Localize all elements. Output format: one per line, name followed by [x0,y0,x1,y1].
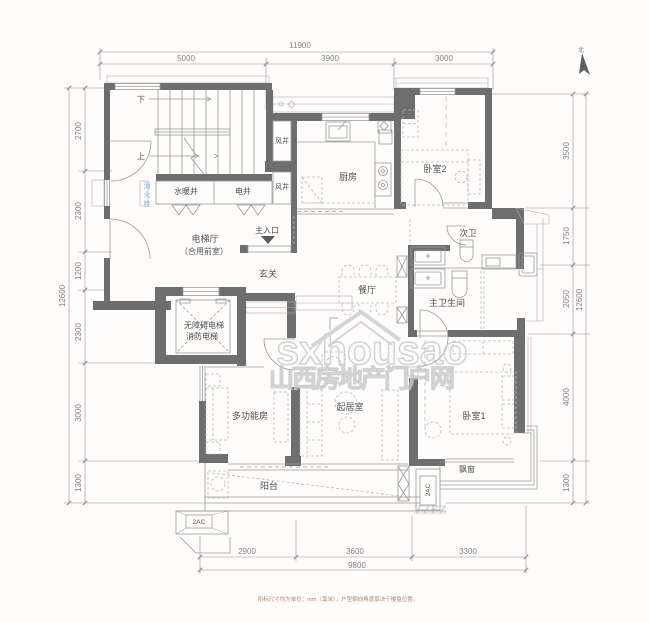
svg-text:次卫: 次卫 [459,228,477,238]
svg-text:2050: 2050 [562,290,571,308]
svg-text:餐厅: 餐厅 [358,284,376,295]
svg-text:水暖井: 水暖井 [174,186,198,196]
svg-text:主入口: 主入口 [255,225,279,235]
svg-text:1750: 1750 [562,227,571,245]
svg-text:卧室1: 卧室1 [462,410,485,421]
svg-text:2AC: 2AC [425,483,432,496]
svg-text:飘窗: 飘窗 [459,464,475,474]
svg-text:无障碍电梯: 无障碍电梯 [184,320,224,330]
svg-text:风井: 风井 [275,182,289,191]
svg-text:9800: 9800 [348,561,366,570]
svg-text:2900: 2900 [238,547,256,556]
svg-text:11900: 11900 [289,41,311,50]
svg-text:3300: 3300 [459,547,477,556]
svg-text:2700: 2700 [74,122,83,140]
svg-text:主卫生间: 主卫生间 [429,297,465,308]
svg-text:4000: 4000 [562,388,571,406]
svg-text:电梯厅: 电梯厅 [191,233,218,244]
svg-text:3500: 3500 [562,142,571,160]
svg-text:3000: 3000 [435,54,453,63]
svg-text:阳台: 阳台 [260,480,278,491]
svg-text:山西房地产门户网: 山西房地产门户网 [269,364,454,393]
svg-text:1300: 1300 [562,474,571,492]
svg-text:卧室2: 卧室2 [423,163,446,174]
svg-text:1200: 1200 [74,262,83,280]
svg-text:下: 下 [137,95,145,104]
svg-text:玄关: 玄关 [259,268,277,279]
svg-text:3900: 3900 [321,54,339,63]
svg-text:2300: 2300 [74,202,83,220]
svg-text:消: 消 [144,181,151,190]
svg-text:1300: 1300 [74,474,83,492]
svg-text:12600: 12600 [58,284,67,307]
svg-text:3600: 3600 [346,547,364,556]
svg-text:5000: 5000 [177,54,195,63]
svg-text:3000: 3000 [74,404,83,422]
svg-text:厨房: 厨房 [339,171,357,182]
svg-text:（合用前室）: （合用前室） [180,246,228,256]
svg-text:上: 上 [137,152,145,161]
svg-text:多功能房: 多功能房 [232,410,268,421]
svg-text:12600: 12600 [575,288,584,311]
svg-text:北: 北 [578,46,584,54]
svg-text:消防电梯: 消防电梯 [186,331,218,341]
svg-text:栓: 栓 [144,199,151,208]
svg-text:2AC: 2AC [193,519,206,526]
svg-text:风井: 风井 [275,136,289,145]
svg-text:2300: 2300 [74,323,83,341]
svg-text:起居室: 起居室 [336,401,363,412]
svg-text:电井: 电井 [235,186,251,196]
svg-text:火: 火 [144,191,151,199]
svg-text:所标尺寸均为单位：mm（毫米），户型朝向角度取决于楼盘位置。: 所标尺寸均为单位：mm（毫米），户型朝向角度取决于楼盘位置。 [258,595,418,603]
